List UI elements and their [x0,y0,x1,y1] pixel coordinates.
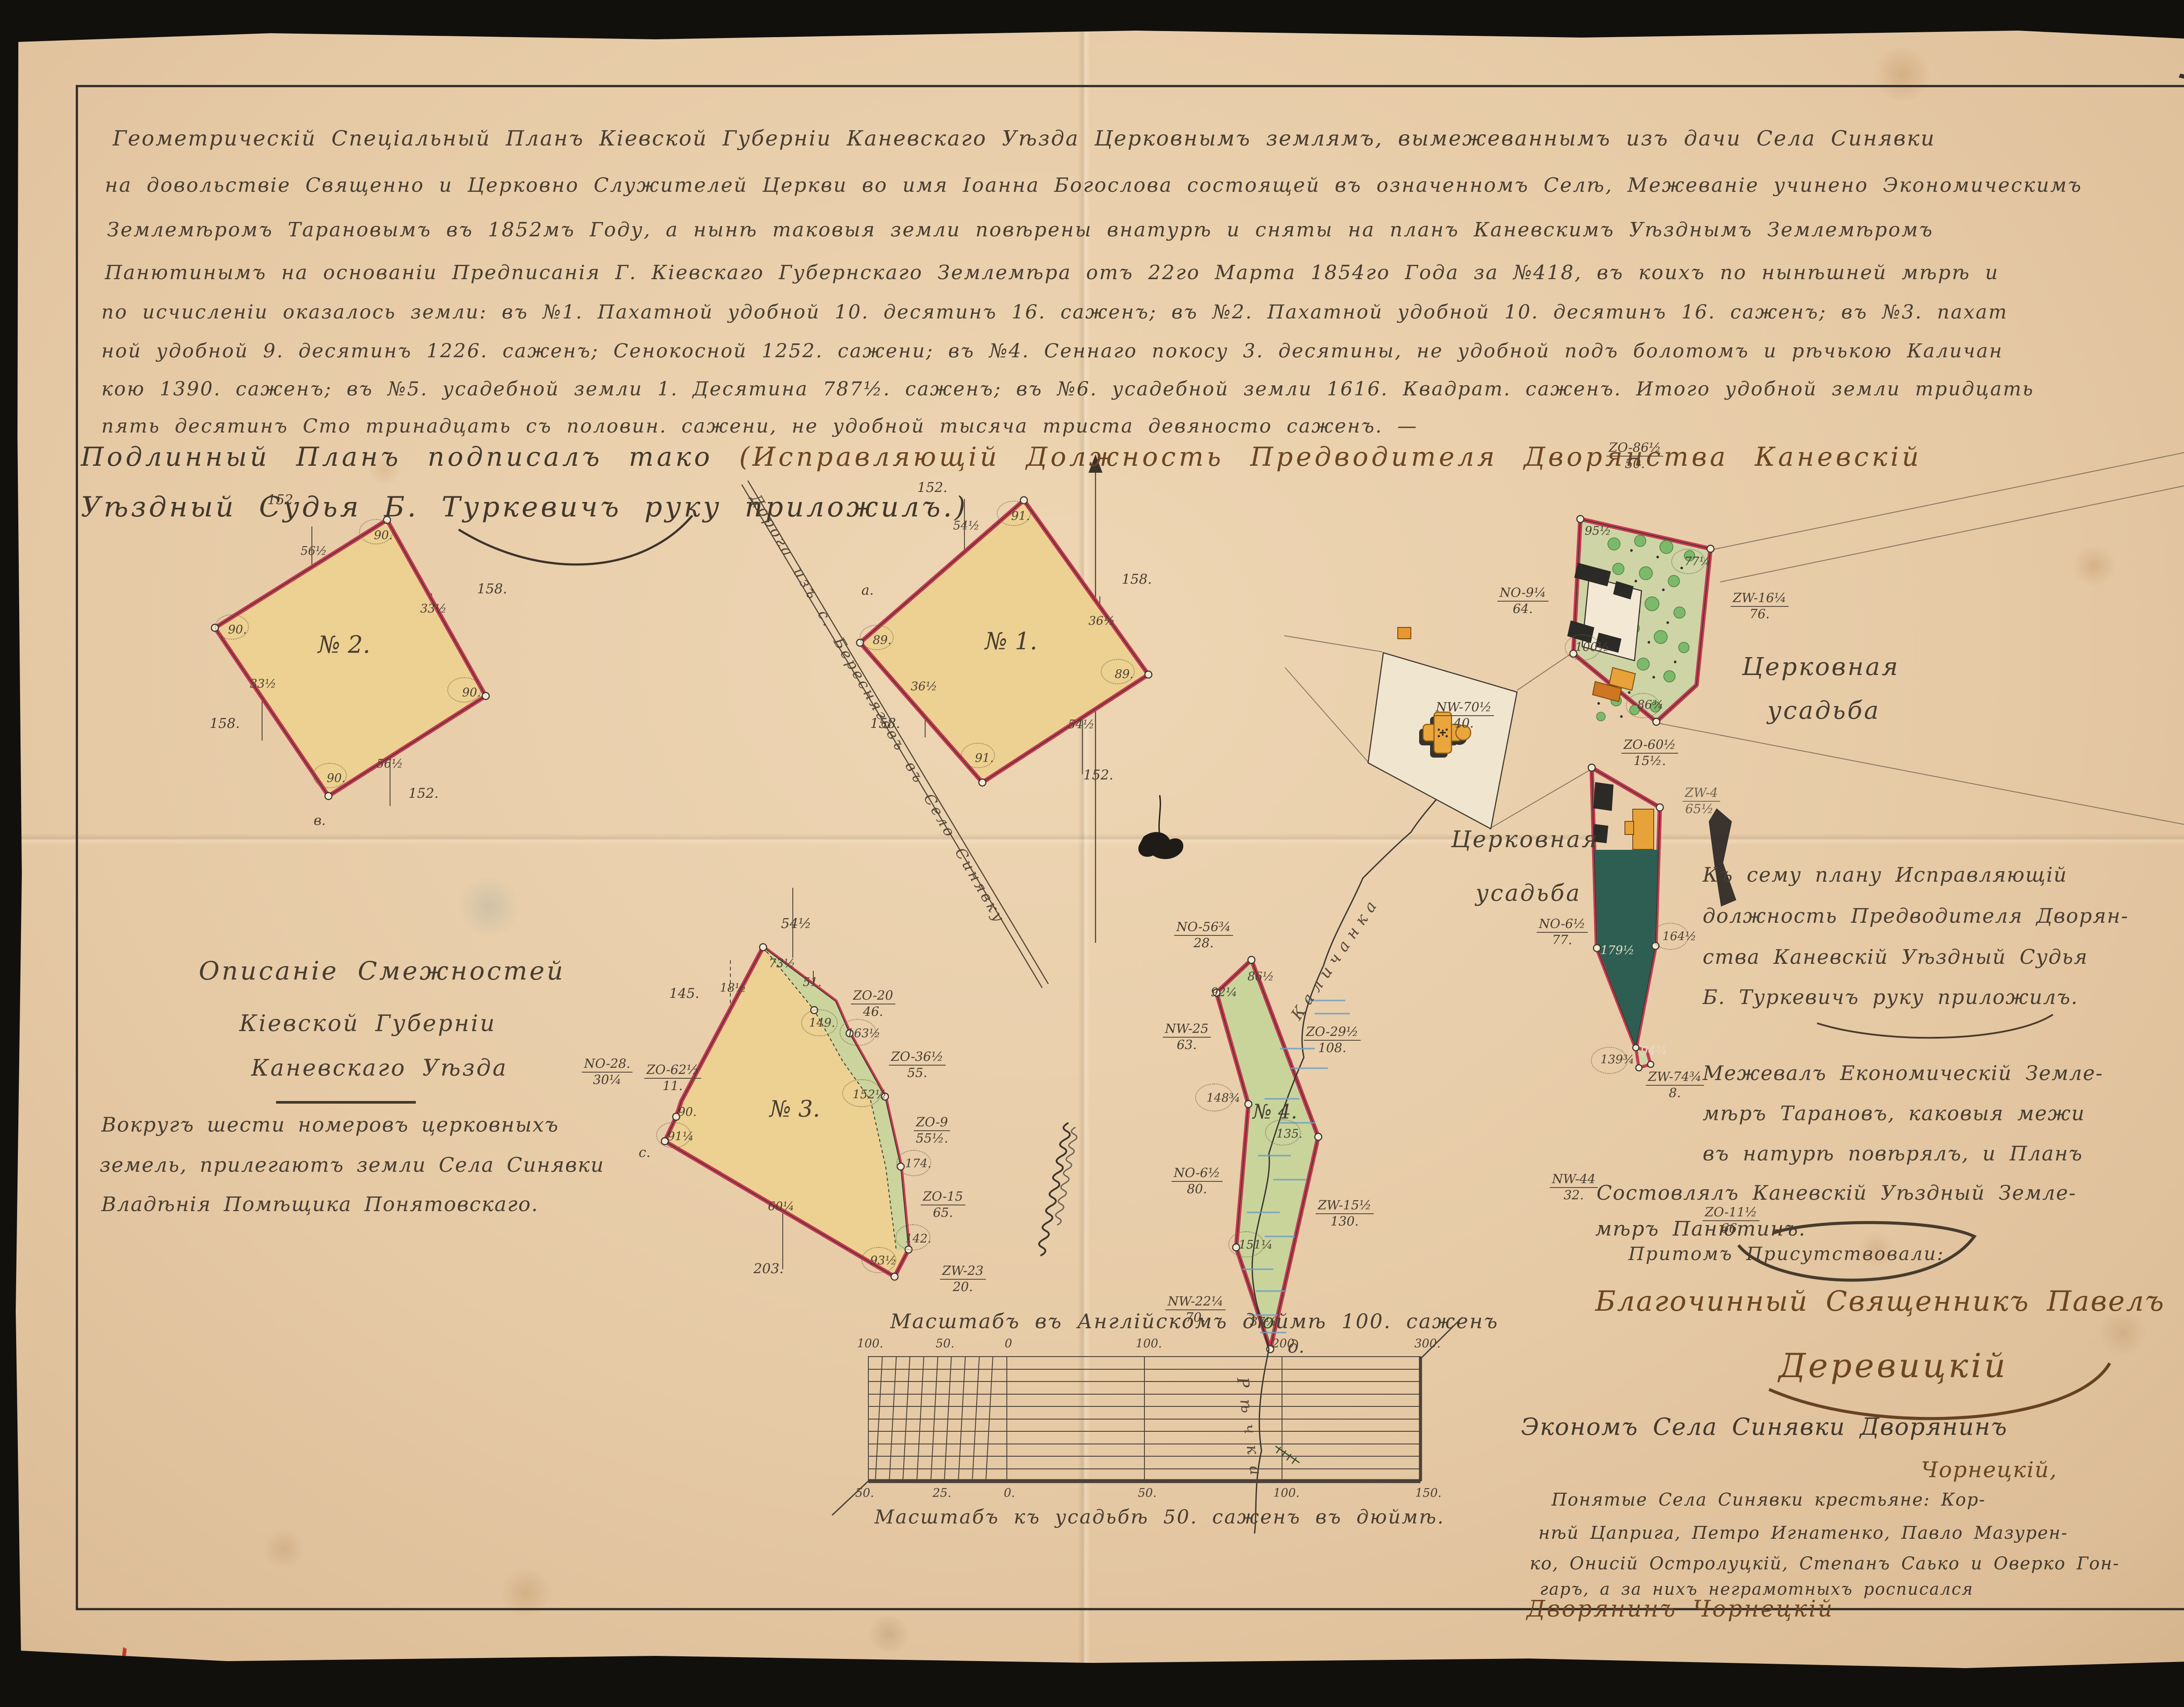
plot-4-number: № 4. [1253,1101,1297,1122]
angle-dotted-circle [1228,1231,1264,1257]
plot-1-side-right: 158. [1122,572,1152,587]
bearing-label-11: NW-2563. [1163,1021,1211,1053]
plot-1-bearing-bottom: 54½ [1068,719,1095,731]
map-canvas [0,0,2184,1707]
scale-top-tick-3: 100. [1136,1338,1162,1350]
scale-bottom-tick-0: 50. [855,1487,874,1499]
plot-3-tick-60: 60¼ [768,1201,795,1213]
angle-dotted-circle [447,677,481,703]
angle-dotted-circle [895,1224,930,1250]
bearing-label-16: ZO-2046. [851,988,895,1019]
plot-2-side-bottom: 152. [408,786,439,801]
title-line-6: ной удобной 9. десятинъ 1226. саженъ; Се… [101,341,2003,361]
ravine-squiggle [1039,1123,1077,1256]
church-estate-label-1b: усадьба [1767,698,1880,724]
attestation-line-2: Уѣздный Судья Б. Туркевичъ руку приложил… [81,493,968,522]
title-line-1: Геометрическій Спеціальный Планъ Кіевско… [113,128,1935,149]
title-line-3: Землемѣромъ Тарановымъ въ 1852мъ Году, а… [107,219,1934,240]
scale-top-label: Масштабъ въ Англійскомъ дюймѣ 100. сажен… [890,1311,1499,1332]
bearing-label-15: ZW-15½130. [1316,1198,1374,1229]
survey-note-line-2: должность Предводителя Дворян- [1703,905,2129,926]
dark-homestead-plot [1588,764,1663,1071]
plot-3-angle-9: 90. [678,1106,697,1118]
bearing-label-21: ZO-62½11. [644,1063,701,1094]
bearing-label-4: ZO-60½15½. [1621,738,1678,769]
survey-note-line-5: Межевалъ Економическій Земле- [1703,1063,2103,1084]
church-estate-label-2b: усадьба [1476,882,1581,906]
paper-sheet: Геометрическій Спеціальный Планъ Кіевско… [0,0,2184,1707]
plot-2-point-letter: в. [314,814,326,828]
bearing-label-10: NO-56¾28. [1174,920,1233,951]
adjacency-title-2: Кіевской Губерніи [239,1012,496,1036]
angle-dotted-circle [860,625,894,650]
survey-note-line-4: Б. Туркевичъ руку приложилъ. [1703,987,2078,1008]
attestation-part-2: (Исправляющій Должность Предводителя Дво… [739,442,1922,472]
witness-line-6: нѣй Цаприга, Петро Игнатенко, Павло Мазу… [1538,1524,2068,1542]
angle-dotted-circle [1565,634,1600,661]
scale-top-tick-0: 100. [857,1338,883,1350]
survey-note-line-1: Къ сему плану Исправляющій [1703,864,2067,885]
angle-dotted-circle [1101,659,1135,684]
plot-3-angle-1: 73½ [769,958,795,970]
angle-dotted-circle [1671,549,1705,574]
plot-3-side-bottom: 203. [753,1262,784,1276]
witness-signature-4: Чорнецкій, [1921,1458,2057,1482]
scale-top-tick-5: 300. [1414,1338,1441,1350]
angle-dotted-circle [961,743,995,768]
plot-2-side-top: 152. [267,493,297,507]
title-line-4: Панютинымъ на основаніи Предписанія Г. К… [105,262,1999,283]
witness-signature-1: Благочинный Священникъ Павелъ [1595,1287,2165,1316]
plot-3-side-top: 54½ [781,917,812,931]
ink-blot [1138,832,1183,859]
plot-2-bearing-bottom: 56½ [377,758,403,770]
title-line-8: пять десятинъ Сто тринадцать съ половин.… [101,416,1418,436]
survey-note-line-6: мѣръ Тарановъ, каковыя межи [1703,1103,2085,1124]
survey-note-line-3: ства Каневскій Уѣздный Судья [1703,946,2088,967]
title-line-2: на довольствіе Священно и Церковно Служи… [105,175,2082,195]
adjacency-body-1: Вокругъ шести номеровъ церковныхъ [101,1114,559,1135]
title-line-7: кою 1390. саженъ; въ №5. усадебной земли… [101,379,2034,399]
scanned-map-document: { "page_number": "1", "header": { "lines… [0,0,2184,1707]
plot-1-bearing-right: 36½ [1089,615,1115,627]
angle-dotted-circle [842,1079,881,1107]
angle-dotted-circle [215,614,249,640]
bearing-label-12: NO-6½80. [1171,1166,1223,1197]
bearing-label-7: NW-4432. [1550,1172,1598,1203]
plot-1-point-letter: а. [861,583,874,598]
bearing-label-22: NO-28.30¼ [582,1056,632,1087]
plot-3-point-letter: с. [639,1146,650,1160]
angle-dotted-circle [1591,1047,1628,1074]
survey-note-line-9: мѣръ Панютинъ. [1595,1218,1806,1239]
scale-bottom-tick-3: 50. [1138,1487,1157,1499]
bearing-label-0: ZO-86½50. [1607,440,1663,471]
plot-4-angle-1: 92¼ [1211,987,1237,999]
bearing-label-19: ZO-1565. [921,1189,965,1220]
plot-1-bearing-left: 36½ [911,681,937,693]
witness-line-3: Экономъ Села Синявки Дворянинъ [1521,1415,2008,1440]
bearing-label-6: ZW-465½. [1683,786,1720,817]
angle-dotted-circle [840,1019,876,1046]
plot-3-tick-18: 18½ [720,982,746,994]
bearing-label-17: ZO-36½55. [889,1049,946,1080]
plot-2-bearing-left: 33½ [250,678,276,690]
adjacency-body-3: Владѣнія Помѣщика Понятовскаго. [101,1194,539,1215]
survey-note-line-7: въ натурѣ повѣрялъ, и Планъ [1703,1143,2083,1164]
angle-dotted-circle [896,1150,931,1176]
plot-1-side-bottom: 152. [1083,768,1113,783]
church-estate-label-2a: Церковная [1451,828,1599,852]
bearing-label-3: NW-70½40. [1434,700,1494,731]
plot-2-side-left: 158. [210,717,240,731]
angle-dotted-circle [313,763,347,788]
scale-bottom-tick-4: 100. [1273,1487,1299,1499]
plot-1-side-top: 152. [917,481,947,495]
angle-dotted-circle [656,1122,691,1148]
church-plot-angle-1: 95½ [1585,525,1611,537]
angle-dotted-circle [997,501,1031,526]
bearing-label-2: ZW-16¼76. [1731,591,1789,622]
scale-top-tick-4: 200. [1272,1338,1298,1350]
plot-3-tick-51: 51. [803,976,822,989]
angle-dotted-circle [801,1009,838,1036]
plot-3-side-left: 145. [669,987,699,1001]
attestation-part-1: Подлинный Планъ подписалъ тако [81,442,739,472]
adjacency-divider [276,1101,416,1104]
adjacency-body-2: земель, прилегаютъ земли Села Синявки [100,1154,605,1175]
dark-plot-angle-1: 179½ [1600,945,1635,957]
plot-1-bearing-top: 54½ [953,520,980,532]
church-estate-label-1a: Церковная [1742,654,1900,680]
witness-line-8: гаръ, а за нихъ неграмотныхъ росписался [1540,1581,1973,1598]
witness-line-7: ко, Онисій Остролуцкій, Степанъ Саько и … [1530,1555,2120,1573]
fern-symbol-icon [1275,1446,1299,1464]
angle-dotted-circle [861,1247,896,1273]
scale-bottom-tick-2: 0. [1004,1487,1015,1499]
witness-line-5: Понятые Села Синявки крестьяне: Кор- [1552,1491,1986,1509]
bearing-label-18: ZO-955½. [914,1115,950,1146]
scale-bottom-label: Масштабъ къ усадьбѣ 50. саженъ въ дюймѣ. [874,1507,1445,1527]
witness-signature-9: Дворянинъ Чорнецкій [1527,1597,1834,1621]
scale-bottom-tick-5: 150. [1415,1487,1441,1499]
dark-plot-angle-4: 94¾ [1641,1045,1667,1057]
scale-bottom-tick-1: 25. [933,1487,951,1499]
angle-dotted-circle [359,519,393,544]
bearing-label-1: NO-9¼64. [1497,585,1548,616]
scale-top-tick-1: 50. [936,1338,954,1350]
plot-1-number: № 1. [985,629,1037,654]
bearing-label-20: ZW-2320. [940,1264,986,1295]
plot-2-side-right: 158. [477,582,507,596]
center-tear-streak [1709,808,1736,907]
bearing-label-9: ZW-74¾8. [1646,1070,1704,1101]
plot-2-bearing-top: 56½ [301,545,327,557]
witnesses-header: Притомъ Присутствовали: [1628,1244,1945,1264]
plot-2-bearing-right: 33½ [420,603,447,615]
plot-2-number: № 2. [318,633,370,658]
survey-note-line-8: Состовлялъ Каневскій Уѣздный Земле- [1597,1182,2077,1203]
small-orange-building [1398,627,1411,639]
bearing-label-5: NO-6½77. [1537,917,1588,948]
angle-dotted-circle [1652,923,1689,950]
angle-dotted-circle [1195,1084,1234,1111]
angle-dotted-circle [1265,1119,1301,1146]
scale-top-tick-2: 0 [1005,1338,1012,1350]
witness-signature-2: Деревицкій [1779,1348,2008,1383]
title-line-5: по исчисленіи оказалось земли: въ №1. Па… [101,302,2008,322]
bearing-label-14: ZO-29½108. [1304,1025,1361,1056]
red-mark [121,1647,127,1664]
plot-4-angle-2: 86½ [1248,971,1274,983]
adjacency-title-3: Каневскаго Уѣзда [251,1056,508,1080]
plot-3-number: № 3. [770,1098,820,1122]
angle-dotted-circle [1626,693,1660,718]
adjacency-title-1: Описаніе Смежностей [199,958,565,984]
